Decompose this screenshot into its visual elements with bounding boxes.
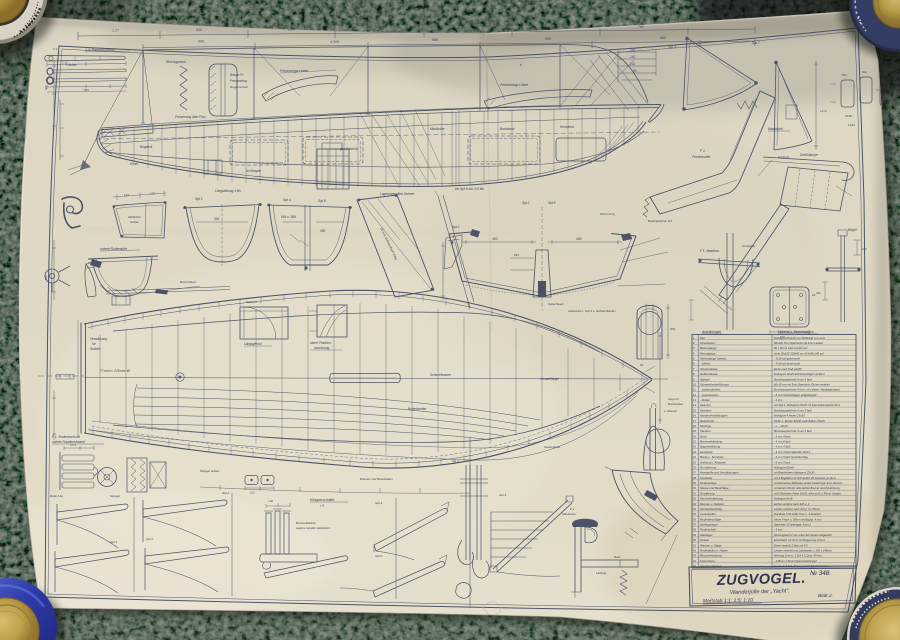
svg-text:Masttabel: Masttabel — [768, 127, 783, 131]
svg-text:450: 450 — [576, 237, 582, 241]
svg-text:Bordwand: Bordwand — [500, 127, 515, 131]
svg-text:Drehklampe: Drehklampe — [800, 153, 818, 157]
svg-text:Mahagoni 60x40: Mahagoni 60x40 — [774, 466, 794, 470]
svg-text:Gradierung: Gradierung — [700, 491, 715, 495]
svg-text:ges.Gewicht: ges.Gewicht — [340, 147, 358, 151]
svg-text:100: 100 — [150, 192, 155, 196]
svg-text:- 6 mm 5 fach: - 6 mm 5 fach — [774, 460, 791, 464]
svg-text:1284: 1284 — [848, 123, 855, 127]
svg-text:60x18 mm mit 3mm Sperrholz, Ei: 60x18 mm mit 3mm Sperrholz, Eichen verle… — [774, 383, 830, 387]
svg-text:Bootsbausperrholz 4,5mm mit L: Bootsbausperrholz 4,5mm mit Leisten, Ran… — [774, 388, 840, 392]
svg-text:Abspannzeichen: Abspannzeichen — [699, 564, 722, 568]
svg-text:Pinnenruder: Pinnenruder — [692, 155, 711, 159]
svg-text:Ruderschaft: Ruderschaft — [700, 528, 716, 532]
svg-text:Spt 6: Spt 6 — [548, 201, 556, 205]
svg-text:Gesamtplan: Gesamtplan — [544, 445, 561, 449]
svg-text:545 u. 595: 545 u. 595 — [281, 215, 296, 219]
svg-text:Wanten u. Stage: Wanten u. Stage — [700, 543, 722, 547]
svg-text:900: 900 — [545, 37, 551, 41]
svg-text:Dollbordleiste: Dollbordleiste — [700, 372, 718, 376]
svg-text:0238: 0238 — [845, 114, 852, 118]
svg-text:- 4 mm 5 fach Querbeschlag: - 4 mm 5 fach Querbeschlag — [774, 455, 808, 459]
svg-text:Rolle 14ø: Rolle 14ø — [50, 494, 63, 498]
svg-text:Persenning: Persenning — [230, 79, 247, 83]
svg-text:Messing 2mm u. 2 Zoll 4,5 Qu: Messing 2mm u. 2 Zoll 4,5 Qual. 40 mm — [774, 554, 822, 558]
svg-text:Besan Fr.: Besan Fr. — [230, 73, 244, 77]
svg-text:Bodenbrett: Bodenbrett — [700, 419, 714, 423]
svg-text:Faulbette: Faulbette — [700, 476, 712, 480]
svg-text:anordnung: anordnung — [314, 346, 329, 350]
svg-text:ohne 30x100 100x40 mm 6,5x40: ohne 30x100 100x40 mm 6,5x40x140 auf — [774, 351, 824, 355]
svg-text:Ruderdollen u. Haken: Ruderdollen u. Haken — [700, 549, 728, 553]
svg-text:490: 490 — [320, 229, 326, 233]
svg-text:1.77: 1.77 — [112, 29, 119, 33]
svg-text:Verstärkung: Verstärkung — [90, 337, 107, 341]
svg-text:Regenschutz: Regenschutz — [230, 85, 249, 89]
svg-text:- 4 mm 4 fach Stahl Mk 10: - 4 mm 4 fach Stahl Mk 10x14 — [774, 450, 810, 454]
svg-text:mit Füßstützen Rahe 10x18, all: mit Füßstützen Rahe 10x18, alles auf 2 x… — [774, 491, 841, 495]
svg-text:Persenning über First: Persenning über First — [175, 115, 206, 119]
svg-text:Heckdeck: Heckdeck — [560, 125, 574, 129]
svg-text:Leisten verleimt nach 4x8 g.: Leisten verleimt nach 4x8 g. 6 x 55mm — [774, 507, 821, 511]
svg-text:Bootshaken: Bootshaken — [180, 280, 197, 284]
svg-text:Bootsbausperrholz 8 mm 6 fac: Bootsbausperrholz 8 mm 6 fach — [774, 377, 812, 381]
svg-text:Spiegel außen: Spiegel außen — [200, 469, 220, 473]
svg-text:Material u. Bemerkungen: Material u. Bemerkungen — [778, 330, 814, 334]
svg-text:Lenzstopfen: Lenzstopfen — [700, 512, 716, 516]
svg-text:- 4 mm 6 fach: - 4 mm 6 fach — [774, 440, 791, 444]
svg-text:60x140 5mm Sperrholz und 4mm: 60x140 5mm Sperrholz und 4mm Leisten — [774, 341, 824, 345]
svg-text:Rundholz fl 50 zöllig 7mm u.: Rundholz fl 50 zöllig 7mm u. 4 Zubehör — [774, 512, 821, 516]
svg-text:Spt 2: Spt 2 — [522, 201, 530, 205]
svg-text:Eisen verzinkt 2 fach mit 4,5: Eisen verzinkt 2 fach mit 4,5 — [774, 543, 808, 547]
svg-text:Eichen verleimt nach 4x8 u. 2: Eichen verleimt nach 4x8 u. 2 — [774, 502, 810, 506]
svg-text:Heckbrett: Heckbrett — [700, 450, 713, 454]
svg-text:Apl 2.: Apl 2. — [145, 537, 154, 541]
svg-text:mit 3 Begleitern für Schrauben: mit 3 Begleitern für Schrauben 40 Isarwe… — [774, 476, 837, 480]
svg-text:Sitzbrett: Sitzbrett — [246, 300, 257, 304]
svg-text:545: 545 — [214, 217, 220, 221]
svg-text:Persennings Leiber: Persennings Leiber — [500, 83, 529, 87]
svg-text:Spt 3: Spt 3 — [668, 45, 676, 49]
svg-text:60 x 30 mit zwei Leisten auf: 60 x 30 mit zwei Leisten auf — [774, 346, 807, 350]
svg-text:Apl 3.: Apl 3. — [498, 493, 507, 497]
svg-text:Rudern: Rudern — [90, 347, 101, 351]
svg-text:Auge für: Auge für — [667, 397, 680, 401]
svg-text:Innenkielen: Innenkielen — [700, 341, 715, 345]
svg-text:Kielquerschnitte: Kielquerschnitte — [310, 498, 334, 502]
svg-text:bei Spt 6 mtl. 9,5 lfm: bei Spt 6 mtl. 9,5 lfm — [455, 187, 484, 191]
svg-text:Schwertbeschlag: Schwertbeschlag — [700, 507, 722, 511]
svg-text:Bootsmittelstück: Bootsmittelstück — [296, 521, 316, 525]
svg-text:Mastkoker: Mastkoker — [430, 127, 446, 131]
svg-text:Schwertkastenführung: Schwertkastenführung — [700, 383, 729, 387]
svg-text:Schwertkasten: Schwertkasten — [430, 373, 451, 377]
svg-text:Bodenbretter: Bodenbretter — [408, 407, 427, 411]
svg-text:Grundierung: Grundierung — [700, 466, 716, 470]
svg-text:F 1. Bodenbrett mit: F 1. Bodenbrett mit — [52, 435, 81, 439]
svg-text:Mastlager: Mastlager — [700, 533, 714, 537]
svg-text:Schleppriegel: Schleppriegel — [700, 523, 718, 527]
svg-text:Kimmverstärkung: Kimmverstärkung — [700, 497, 723, 501]
svg-text:von Spt 1: Mahagoni 25x25 mit: von Spt 1: Mahagoni 25x25 mit Querbalken… — [774, 403, 841, 407]
svg-text:Sitzflächen: Sitzflächen — [128, 215, 141, 219]
svg-text:760: 760 — [638, 25, 644, 29]
svg-text:Lagerungsmittel-Schwer: Lagerungsmittel-Schwer — [380, 192, 415, 196]
svg-text:Spt 2: Spt 2 — [452, 225, 460, 229]
svg-text:mit Eichen 60x18, alles Eichel: mit Eichen 60x18, alles Eichel Bremer un… — [774, 486, 840, 490]
svg-text:240: 240 — [630, 48, 636, 52]
svg-text:Umlegbar: Umlegbar — [742, 244, 756, 248]
svg-text:Mahagoni 4 leisten 25x25: Mahagoni 4 leisten 25x25 — [774, 414, 805, 418]
svg-text:F 1. Mastfuss: F 1. Mastfuss — [700, 249, 719, 253]
svg-text:Kimm: Kimm — [130, 162, 138, 166]
svg-text:Schlinge: Schlinge — [700, 424, 711, 428]
svg-text:Masse und Beschläge: Masse und Beschläge — [700, 486, 729, 490]
svg-text:Kastenverstärkungen: Kastenverstärkungen — [700, 414, 728, 418]
svg-text:1:4: 1:4 — [320, 504, 324, 508]
svg-text:Kiel: Kiel — [700, 336, 705, 340]
svg-text:450: 450 — [492, 237, 498, 241]
svg-text:465: 465 — [44, 85, 48, 90]
svg-text:64: 64 — [640, 363, 644, 367]
svg-text:Apl 6.: Apl 6. — [374, 554, 383, 558]
svg-text:Streckgummi: Streckgummi — [166, 60, 186, 64]
svg-text:Spt 4.: Spt 4. — [375, 501, 383, 505]
svg-text:Spt 8: Spt 8 — [318, 199, 326, 203]
svg-text:Bootsverkleidung: Bootsverkleidung — [700, 440, 723, 444]
svg-text:Bootshaken: Bootshaken — [668, 402, 684, 406]
svg-text:u. Riemen: u. Riemen — [664, 409, 678, 413]
svg-text:90: 90 — [633, 69, 637, 73]
svg-text:- (oben): - (oben) — [700, 362, 710, 366]
svg-text:Borde u. Sonstwie: Borde u. Sonstwie — [700, 455, 724, 459]
svg-text:865: 865 — [432, 38, 438, 42]
svg-text:- u. - 10x18: - u. - 10x18 — [774, 424, 788, 428]
svg-text:- 6 mm 4 fach: - 6 mm 4 fach — [774, 434, 791, 438]
svg-text:Planken: Planken — [700, 429, 711, 433]
svg-text:Spt 1: Spt 1 — [195, 197, 203, 201]
svg-text:305: 305 — [670, 327, 675, 331]
svg-text:Leisten verzinkt und Latzbänd: Leisten verzinkt und Latzbänder, L 150 x… — [774, 549, 833, 553]
svg-text:Handgriffe und Verstärkungen: Handgriffe und Verstärkungen — [700, 471, 739, 475]
svg-text:Bootsbausperrholz 4 mm 5 fac: Bootsbausperrholz 4 mm 5 fach — [774, 429, 812, 433]
svg-text:281: 281 — [514, 253, 519, 257]
svg-text:Sperrholz 10 überlappt, 4mm 2: Sperrholz 10 überlappt, 4mm 2 — [774, 523, 811, 527]
svg-text:140: 140 — [124, 193, 129, 197]
svg-text:415: 415 — [816, 291, 821, 295]
svg-text:Spiegel: Spiegel — [110, 494, 120, 498]
svg-text:Kielschiene: Kielschiene — [700, 559, 715, 563]
svg-text:Süllrand u. Klampen: Süllrand u. Klampen — [700, 460, 726, 464]
svg-text:Längslattung 4 lfm: Längslattung 4 lfm — [215, 189, 241, 193]
svg-text:215: 215 — [630, 62, 636, 66]
svg-text:n.40: n.40 — [268, 499, 274, 503]
svg-text:Eiche nach Maß 10x65: Eiche nach Maß 10x65 — [774, 367, 802, 371]
svg-text:Hülsen: Hülsen — [700, 538, 709, 542]
svg-text:Apl 4: Apl 4 — [452, 459, 459, 463]
svg-text:im Klepper: im Klepper — [246, 169, 262, 173]
svg-text:Blockverkleidung: Blockverkleidung — [700, 554, 722, 558]
svg-text:140: 140 — [630, 55, 636, 59]
svg-text:Bügel: Bügel — [848, 228, 857, 232]
svg-text:Spiegel: Spiegel — [700, 377, 710, 381]
svg-text:210: 210 — [250, 491, 255, 495]
svg-text:№ 348.: № 348. — [810, 570, 831, 577]
svg-text:Spt 7: Spt 7 — [752, 41, 760, 45]
svg-text:Kimmgänge: Kimmgänge — [700, 351, 716, 355]
svg-text:Kiefer u. Eichen 60x30 Lade Ba: Kiefer u. Eichen 60x30 Lade Balken 25x25 — [774, 419, 825, 423]
svg-text:940: 940 — [196, 28, 202, 32]
svg-text:Bugdeck: Bugdeck — [140, 145, 153, 149]
svg-text:60ø: 60ø — [862, 70, 867, 74]
svg-text:Ausbau: Ausbau — [129, 220, 139, 224]
svg-text:Spanten: Spanten — [700, 403, 711, 407]
svg-text:Duch: Duch — [700, 434, 707, 438]
svg-text:Lattings: Lattings — [596, 571, 607, 575]
svg-text:680: 680 — [660, 36, 666, 40]
svg-text:Mahagoni 6x18: Mahagoni 6x18 — [774, 497, 793, 501]
svg-text:- 8 mm mit Decklagen aufgedop: - 8 mm mit Decklagen aufgedoppelt — [774, 393, 817, 397]
svg-text:Bodengänge: Bodengänge — [700, 346, 717, 350]
svg-text:Ahorn 8 fach u. 55mm mit Bugsp: Ahorn 8 fach u. 55mm mit Bugsp. 4 mm — [773, 517, 822, 521]
svg-text:Persennings Leiber: Persennings Leiber — [280, 69, 309, 73]
svg-text:Bodenplanken 6,5: Bodenplanken 6,5 — [648, 219, 673, 223]
svg-text:940: 940 — [198, 40, 204, 44]
svg-text:- 7x18 auf geschraubt: - 7x18 auf geschraubt — [774, 362, 800, 366]
svg-text:Riemen u. Stützen: Riemen u. Stützen — [700, 502, 724, 506]
svg-text:Mastkoker: Mastkoker — [562, 512, 577, 516]
svg-text:Eisenblech mit 8mm mit Bugspru: Eisenblech mit 8mm mit Bugsprung 4,5mm — [774, 538, 826, 542]
svg-text:- Boden: - Boden — [700, 398, 711, 402]
svg-text:Ruderbeschläge: Ruderbeschläge — [700, 517, 721, 521]
svg-text:Kimm 22 lg: Kimm 22 lg — [600, 212, 615, 216]
svg-text:- 4 mm: - 4 mm — [774, 398, 783, 402]
svg-text:Kielschwein: Kielschwein — [548, 302, 564, 306]
svg-text:obere Planken-: obere Planken- — [310, 341, 332, 345]
svg-text:Ruderanlage: Ruderanlage — [700, 481, 717, 485]
svg-text:Spt 2.: Spt 2. — [222, 491, 230, 495]
svg-text:mit Schrauben Befestigt, außen: mit Schrauben Befestigt, außen Federring… — [774, 481, 843, 485]
svg-text:Längsgerüst: Längsgerüst — [244, 342, 262, 346]
svg-text:Anordnungen: Anordnungen — [701, 330, 721, 334]
svg-text:Mahagoni 60x140 mm 6150x140: Mahagoni 60x140 mm 6150x140 mm rund — [774, 336, 825, 340]
svg-text:Schotten: Schotten — [700, 408, 712, 412]
svg-text:Apl 1.: Apl 1. — [109, 540, 118, 544]
svg-text:- 5x18 auf geschraubt: - 5x18 auf geschraubt — [774, 357, 800, 361]
svg-text:- 145mm 1 Punkt Querverstell: - 145mm 1 Punkt Querverstellungen — [774, 559, 818, 563]
svg-text:65ø: 65ø — [842, 73, 847, 77]
svg-text:- unverleimten: - unverleimten — [700, 393, 719, 397]
svg-text:4 ft 4: 4 ft 4 — [70, 443, 77, 447]
svg-text:ZUGVOGEL.: ZUGVOGEL. — [716, 571, 806, 589]
svg-text:mit Randhölzern Mahagoni 25x3: mit Randhölzern Mahagoni 25x30 — [774, 471, 815, 475]
svg-text:Spt 4: Spt 4 — [283, 198, 291, 202]
svg-text:- 4 mm 4 fach: - 4 mm 4 fach — [774, 445, 791, 449]
svg-text:Riemen und Bootshaken: Riemen und Bootshaken — [360, 477, 393, 481]
svg-text:+27ø: +27ø — [820, 109, 827, 113]
svg-text:Lattenkiel n. Spt 2 u. Schwert: Lattenkiel n. Spt 2 u. Schwertkasten — [568, 309, 616, 313]
svg-text:Mahagoni 40x25 Eichenholzlage: Mahagoni 40x25 Eichenholzlagen verleimt — [774, 372, 825, 376]
svg-text:220: 220 — [862, 247, 867, 251]
svg-text:Seitengänge (unten): Seitengänge (unten) — [700, 357, 726, 361]
svg-text:Gesamtlänge: Gesamtlänge — [540, 377, 559, 381]
svg-text:Messingblech 2 mm unter Schrau: Messingblech 2 mm unter Schrauben aufges… — [774, 533, 832, 537]
svg-text:Hagens Ausstell. Hebelstück: Hagens Ausstell. Hebelstück — [296, 526, 331, 530]
svg-text:1:1: 1:1 — [53, 47, 58, 51]
svg-text:Bugverstärkung: Bugverstärkung — [700, 445, 721, 449]
svg-text:4.300: 4.300 — [330, 40, 339, 44]
svg-text:77 mm n. 218 mm W.: 77 mm n. 218 mm W. — [100, 369, 131, 373]
svg-text:F 1.: F 1. — [570, 507, 575, 511]
svg-text:Bootsbausperrholz 4 mm 5 fac: Bootsbausperrholz 4 mm 5 fach — [774, 408, 812, 412]
svg-text:oberer Randbordwand: oberer Randbordwand — [52, 440, 85, 444]
svg-text:ø6: ø6 — [812, 293, 816, 297]
svg-text:- wasserdichten: - wasserdichten — [700, 388, 721, 392]
svg-text:F 1.: F 1. — [700, 149, 706, 153]
svg-text:Blatt 2.: Blatt 2. — [818, 593, 833, 599]
svg-text:Buck: Buck — [614, 555, 621, 559]
svg-text:- 4 mm: - 4 mm — [774, 528, 783, 532]
svg-text:Scheuerleiste: Scheuerleiste — [700, 367, 718, 371]
